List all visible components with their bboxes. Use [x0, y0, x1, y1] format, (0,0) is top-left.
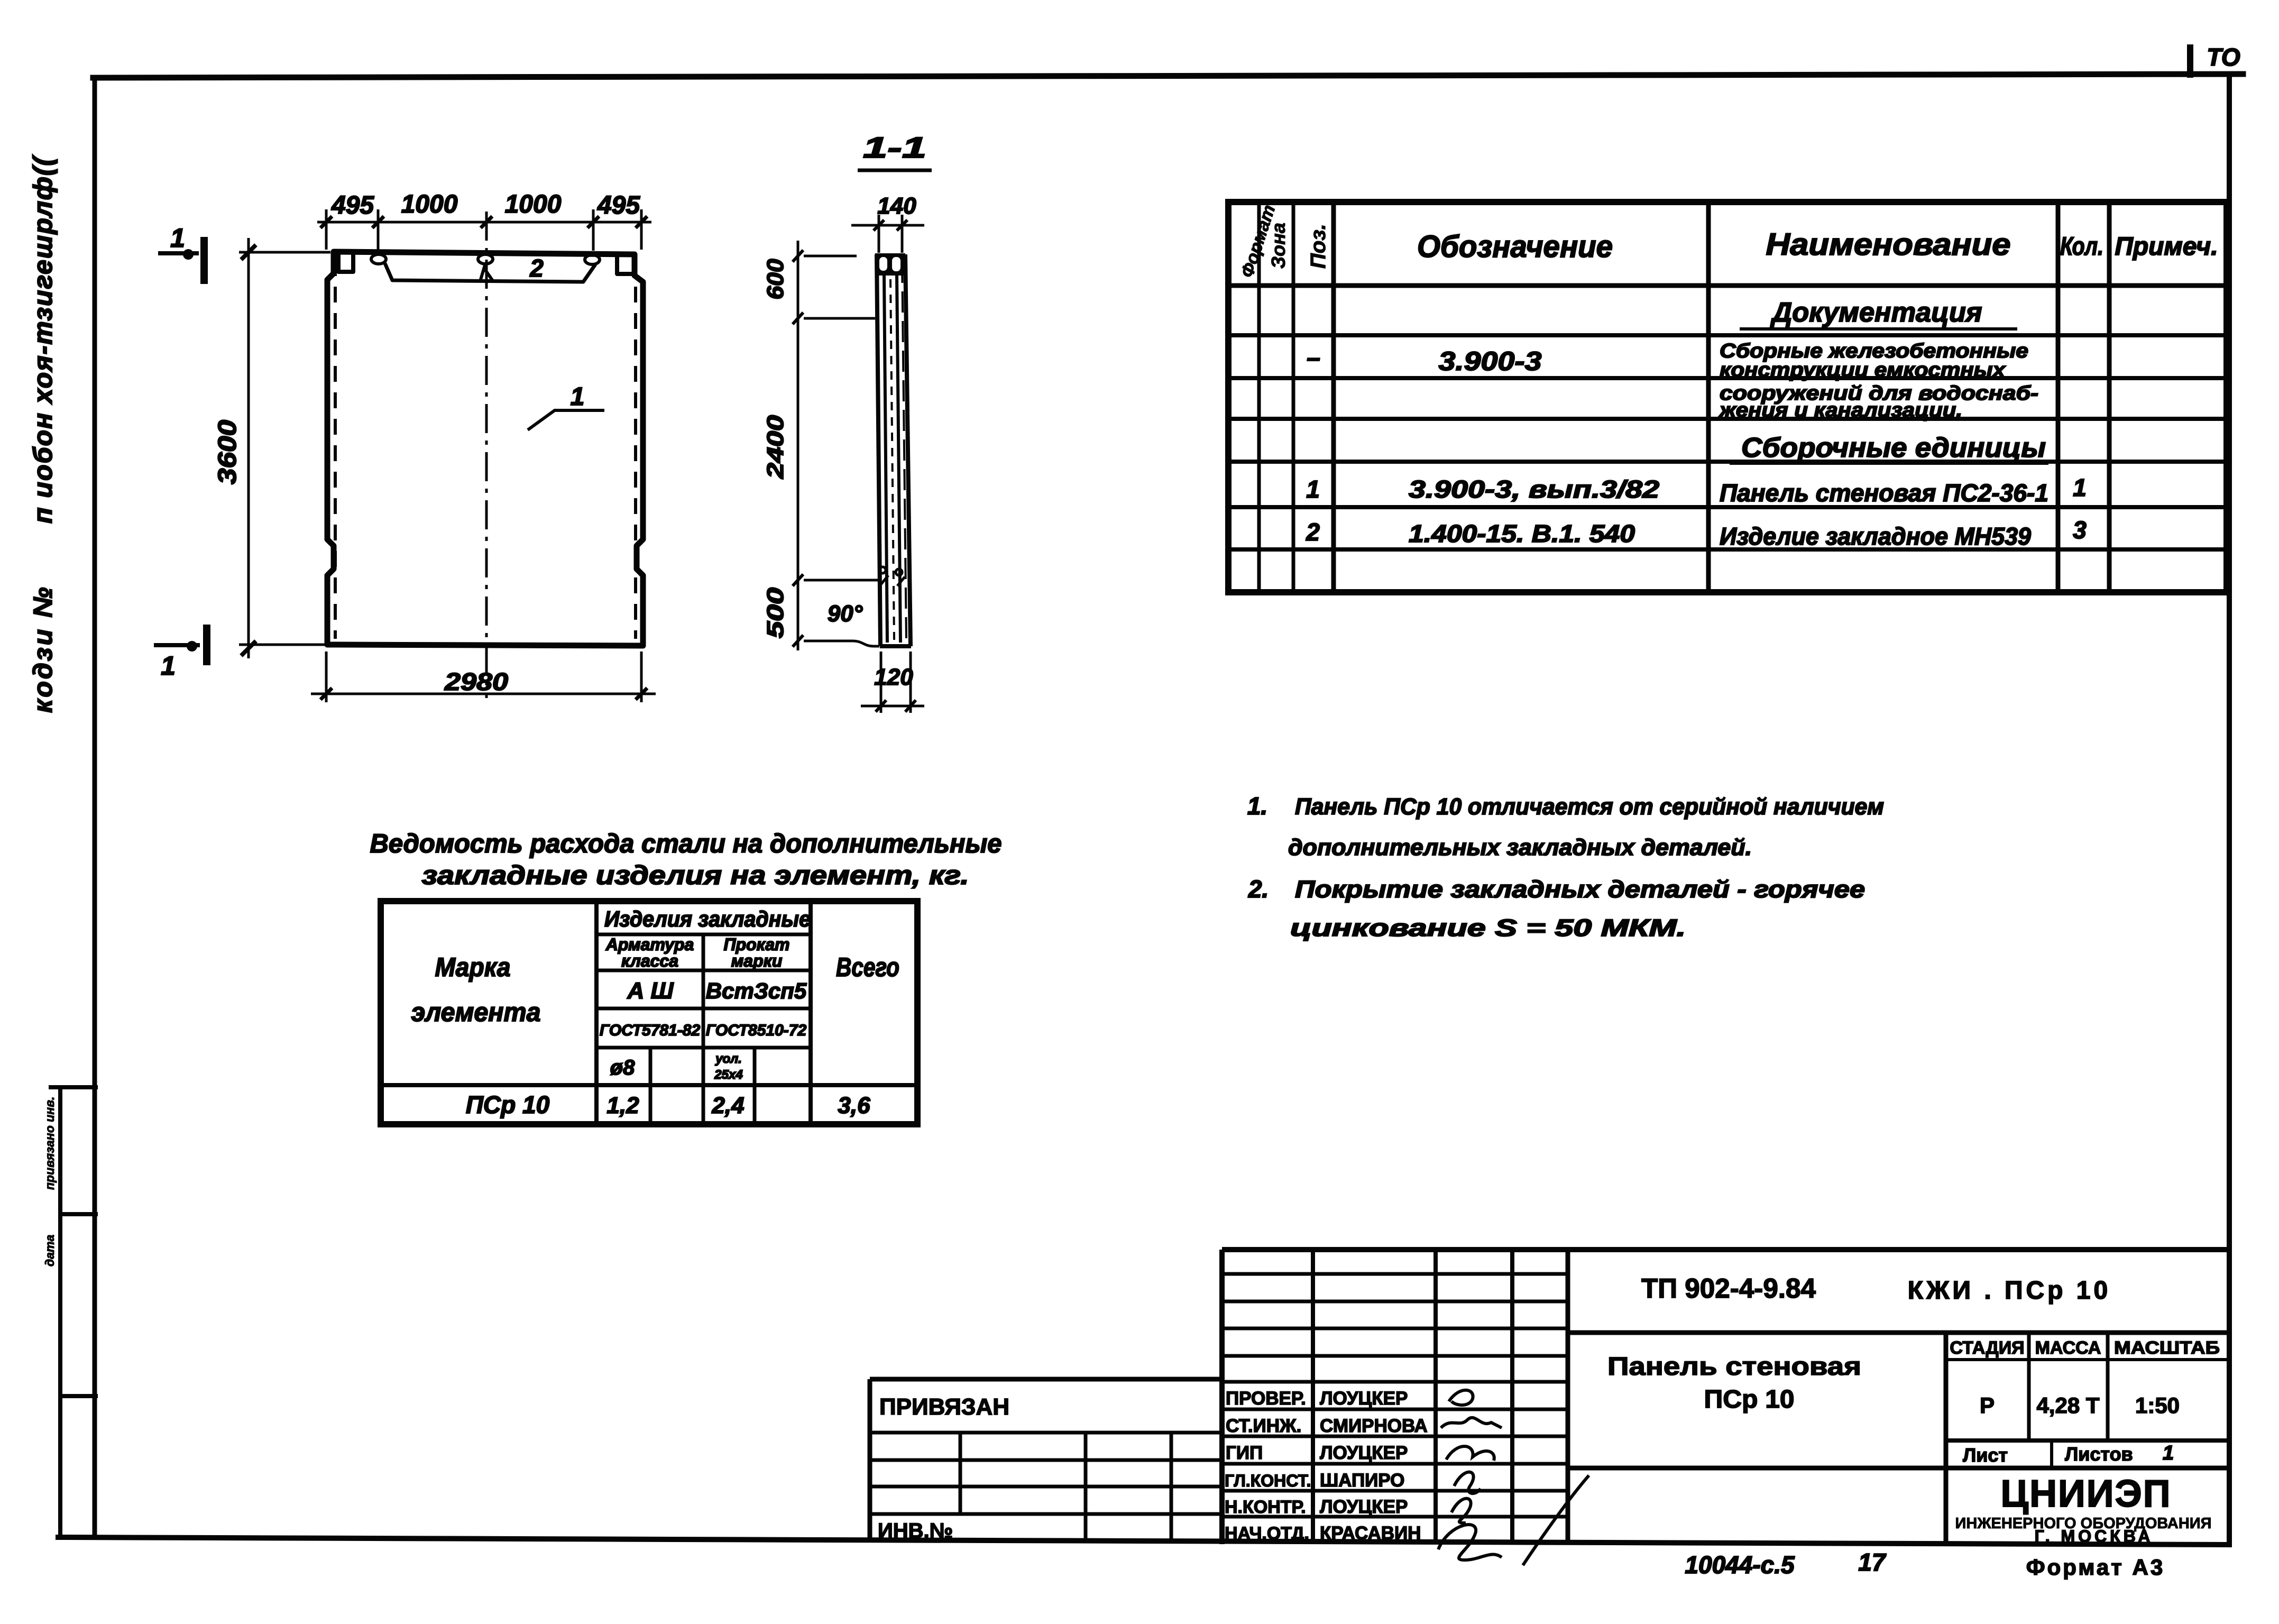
- svg-text:ТО: ТО: [2207, 43, 2240, 71]
- svg-text:МАСШТАБ: МАСШТАБ: [2114, 1338, 2220, 1358]
- svg-text:Сборочные единицы: Сборочные единицы: [1741, 433, 2046, 463]
- svg-text:закладные изделия на элем: закладные изделия на элемент, кг.: [422, 860, 969, 890]
- svg-text:СТАДИЯ: СТАДИЯ: [1950, 1338, 2024, 1358]
- svg-text:Изделие закладное МН539: Изделие закладное МН539: [1720, 522, 2031, 550]
- svg-text:495: 495: [331, 191, 374, 219]
- svg-text:1: 1: [170, 223, 185, 253]
- svg-text:–: –: [1307, 344, 1320, 371]
- svg-text:Н.КОНТР.: Н.КОНТР.: [1225, 1497, 1306, 1517]
- svg-text:1: 1: [2073, 474, 2087, 501]
- svg-text:СМИРНОВА: СМИРНОВА: [1320, 1416, 1428, 1436]
- svg-text:КЖИ . ПСр 10: КЖИ . ПСр 10: [1908, 1277, 2111, 1305]
- svg-text:25х4: 25х4: [714, 1068, 742, 1082]
- svg-text:Изделия закладные: Изделия закладные: [604, 906, 811, 931]
- svg-text:Всего: Всего: [836, 952, 899, 982]
- svg-text:1000: 1000: [401, 190, 458, 218]
- svg-text:17: 17: [1858, 1548, 1887, 1576]
- svg-text:2,4: 2,4: [711, 1093, 744, 1118]
- svg-text:элемента: элемента: [411, 997, 541, 1027]
- svg-text:жения и канализации.: жения и канализации.: [1719, 399, 1962, 421]
- svg-text:Примеч.: Примеч.: [2115, 233, 2218, 261]
- svg-text:1.: 1.: [1247, 792, 1267, 820]
- svg-text:Панель стеновая: Панель стеновая: [1607, 1353, 1861, 1381]
- svg-text:Обозначение: Обозначение: [1417, 230, 1613, 264]
- svg-text:Зона: Зона: [1267, 223, 1289, 269]
- svg-text:600: 600: [762, 259, 788, 300]
- svg-text:Покрытие закладных деталей -: Покрытие закладных деталей - горячее: [1295, 876, 1865, 903]
- svg-text:1: 1: [161, 651, 176, 681]
- svg-text:Марка: Марка: [435, 952, 511, 982]
- svg-text:2980: 2980: [444, 668, 509, 695]
- svg-text:120: 120: [874, 664, 913, 690]
- svg-text:ПСр 10: ПСр 10: [466, 1091, 550, 1118]
- svg-text:Наименование: Наименование: [1766, 227, 2011, 262]
- svg-text:Лист: Лист: [1963, 1444, 2008, 1466]
- svg-text:90°: 90°: [828, 601, 863, 627]
- svg-text:НАЧ.ОТД.: НАЧ.ОТД.: [1225, 1524, 1309, 1544]
- svg-text:привязано инв.: привязано инв.: [43, 1097, 57, 1190]
- svg-text:ГЛ.КОНСТ.: ГЛ.КОНСТ.: [1225, 1471, 1311, 1490]
- svg-text:495: 495: [597, 191, 640, 219]
- svg-text:2: 2: [1306, 518, 1320, 546]
- svg-text:ЛОУЦКЕР: ЛОУЦКЕР: [1320, 1388, 1408, 1409]
- svg-text:Г. МОСКВА: Г. МОСКВА: [2035, 1527, 2154, 1546]
- svg-text:марки: марки: [731, 951, 783, 970]
- svg-text:п иобон хоя-тзигешрлф((: п иобон хоя-тзигешрлф((: [28, 154, 58, 524]
- svg-text:ЛОУЦКЕР: ЛОУЦКЕР: [1320, 1443, 1408, 1463]
- svg-text:2.: 2.: [1248, 875, 1269, 903]
- svg-text:цинкование S = 50 МКМ.: цинкование S = 50 МКМ.: [1290, 914, 1686, 941]
- svg-text:1: 1: [1306, 475, 1320, 503]
- svg-text:Р: Р: [1980, 1393, 1995, 1418]
- svg-text:Листов: Листов: [2065, 1443, 2133, 1465]
- svg-text:3.900-3, вып.3/82: 3.900-3, вып.3/82: [1409, 475, 1660, 503]
- svg-text:кодзи №: кодзи №: [28, 585, 58, 713]
- svg-text:ГОСТ5781-82: ГОСТ5781-82: [600, 1022, 701, 1039]
- svg-text:дата: дата: [43, 1235, 57, 1267]
- svg-text:3,6: 3,6: [838, 1093, 870, 1118]
- svg-text:КРАСАВИН: КРАСАВИН: [1320, 1523, 1421, 1544]
- svg-text:3: 3: [2073, 516, 2087, 544]
- svg-text:Поз.: Поз.: [1307, 224, 1330, 269]
- svg-text:ТП 902-4-9.84: ТП 902-4-9.84: [1641, 1273, 1816, 1304]
- svg-text:ПРОВЕР.: ПРОВЕР.: [1226, 1388, 1306, 1409]
- svg-text:ПРИВЯЗАН: ПРИВЯЗАН: [879, 1394, 1009, 1420]
- svg-text:ЛОУЦКЕР: ЛОУЦКЕР: [1320, 1497, 1408, 1517]
- svg-text:140: 140: [877, 193, 916, 219]
- svg-text:2: 2: [529, 254, 544, 282]
- svg-text:Ведомость расхода стали на: Ведомость расхода стали на дополнительны…: [370, 829, 1002, 858]
- svg-text:Формат А3: Формат А3: [2026, 1555, 2165, 1580]
- svg-text:ИНВ.№: ИНВ.№: [878, 1519, 953, 1543]
- svg-text:ШАПИРО: ШАПИРО: [1320, 1470, 1404, 1491]
- svg-text:ПСр 10: ПСр 10: [1704, 1386, 1795, 1414]
- svg-text:2400: 2400: [762, 415, 788, 479]
- svg-text:1:50: 1:50: [2135, 1393, 2180, 1418]
- svg-text:ГОСТ8510-72: ГОСТ8510-72: [706, 1022, 807, 1039]
- svg-text:500: 500: [762, 587, 788, 638]
- svg-text:1000: 1000: [505, 190, 562, 218]
- svg-text:МАССА: МАССА: [2035, 1338, 2101, 1358]
- svg-text:Панель стеновая ПС2-36-1: Панель стеновая ПС2-36-1: [1720, 479, 2048, 507]
- svg-text:4,28 Т: 4,28 Т: [2036, 1393, 2099, 1418]
- svg-text:ЦНИИЭП: ЦНИИЭП: [2000, 1473, 2171, 1515]
- svg-text:Панель ПСр 10 отличается от: Панель ПСр 10 отличается от серийной нал…: [1295, 794, 1884, 820]
- svg-text:А Ш: А Ш: [627, 978, 674, 1004]
- svg-text:конструкции емкостных: конструкции емкостных: [1720, 359, 2006, 381]
- svg-text:3600: 3600: [214, 420, 242, 484]
- svg-text:1,2: 1,2: [606, 1093, 639, 1118]
- svg-text:Кол.: Кол.: [2060, 233, 2103, 261]
- svg-text:уол.: уол.: [715, 1052, 742, 1066]
- svg-text:ø8: ø8: [610, 1056, 635, 1079]
- svg-text:3.900-3: 3.900-3: [1439, 346, 1542, 376]
- svg-text:1: 1: [2163, 1442, 2174, 1464]
- svg-text:класса: класса: [621, 951, 678, 970]
- svg-text:10044-с.5: 10044-с.5: [1685, 1551, 1795, 1579]
- svg-text:ВстЗсп5: ВстЗсп5: [706, 978, 807, 1003]
- svg-text:дополнительных закладных дет: дополнительных закладных деталей.: [1288, 834, 1752, 860]
- svg-text:Документация: Документация: [1770, 297, 1982, 328]
- svg-text:1.400-15. В.1. 540: 1.400-15. В.1. 540: [1409, 520, 1635, 547]
- svg-text:1: 1: [571, 383, 585, 411]
- svg-text:1-1: 1-1: [863, 131, 926, 164]
- svg-text:СТ.ИНЖ.: СТ.ИНЖ.: [1226, 1416, 1301, 1436]
- svg-text:ГИП: ГИП: [1226, 1443, 1263, 1463]
